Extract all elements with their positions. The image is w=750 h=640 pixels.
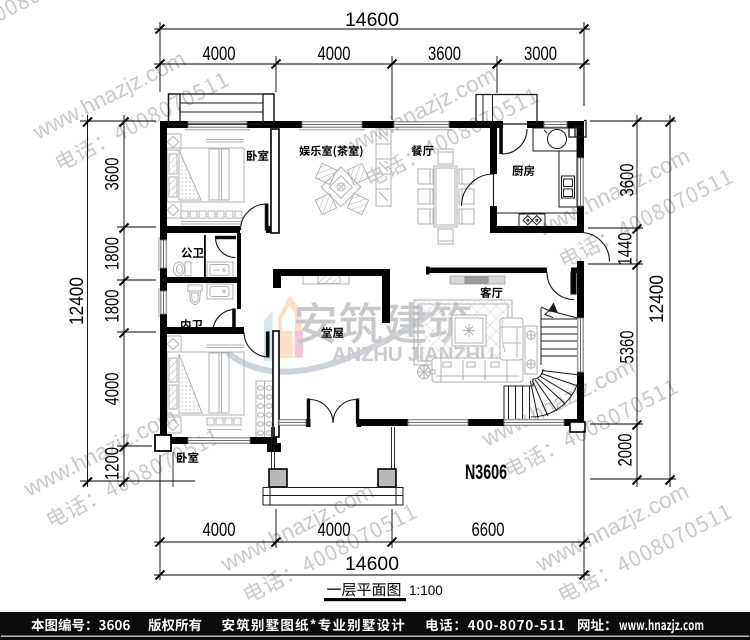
svg-text:12400: 12400	[67, 277, 88, 325]
svg-text:14600: 14600	[345, 10, 399, 31]
svg-text:N3606: N3606	[465, 461, 507, 484]
svg-text:4000: 4000	[318, 44, 351, 65]
svg-text:3600: 3600	[428, 44, 461, 65]
svg-text:12400: 12400	[647, 275, 668, 323]
svg-text:4000: 4000	[103, 373, 124, 406]
svg-text:4000: 4000	[203, 44, 236, 65]
svg-text:2000: 2000	[616, 434, 637, 467]
svg-text:1:100: 1:100	[409, 583, 443, 598]
svg-text:3600: 3600	[618, 164, 639, 197]
svg-text:5360: 5360	[618, 331, 639, 364]
svg-text:4000: 4000	[203, 520, 236, 541]
svg-text:4000: 4000	[318, 520, 351, 541]
svg-text:3600: 3600	[103, 158, 124, 191]
svg-text:1200: 1200	[103, 447, 124, 480]
svg-text:1800: 1800	[103, 290, 124, 323]
svg-text:3000: 3000	[524, 44, 557, 65]
svg-text:1800: 1800	[103, 237, 124, 270]
svg-text:6600: 6600	[472, 520, 505, 541]
svg-text:1440: 1440	[616, 233, 637, 266]
svg-text:14600: 14600	[345, 554, 399, 575]
